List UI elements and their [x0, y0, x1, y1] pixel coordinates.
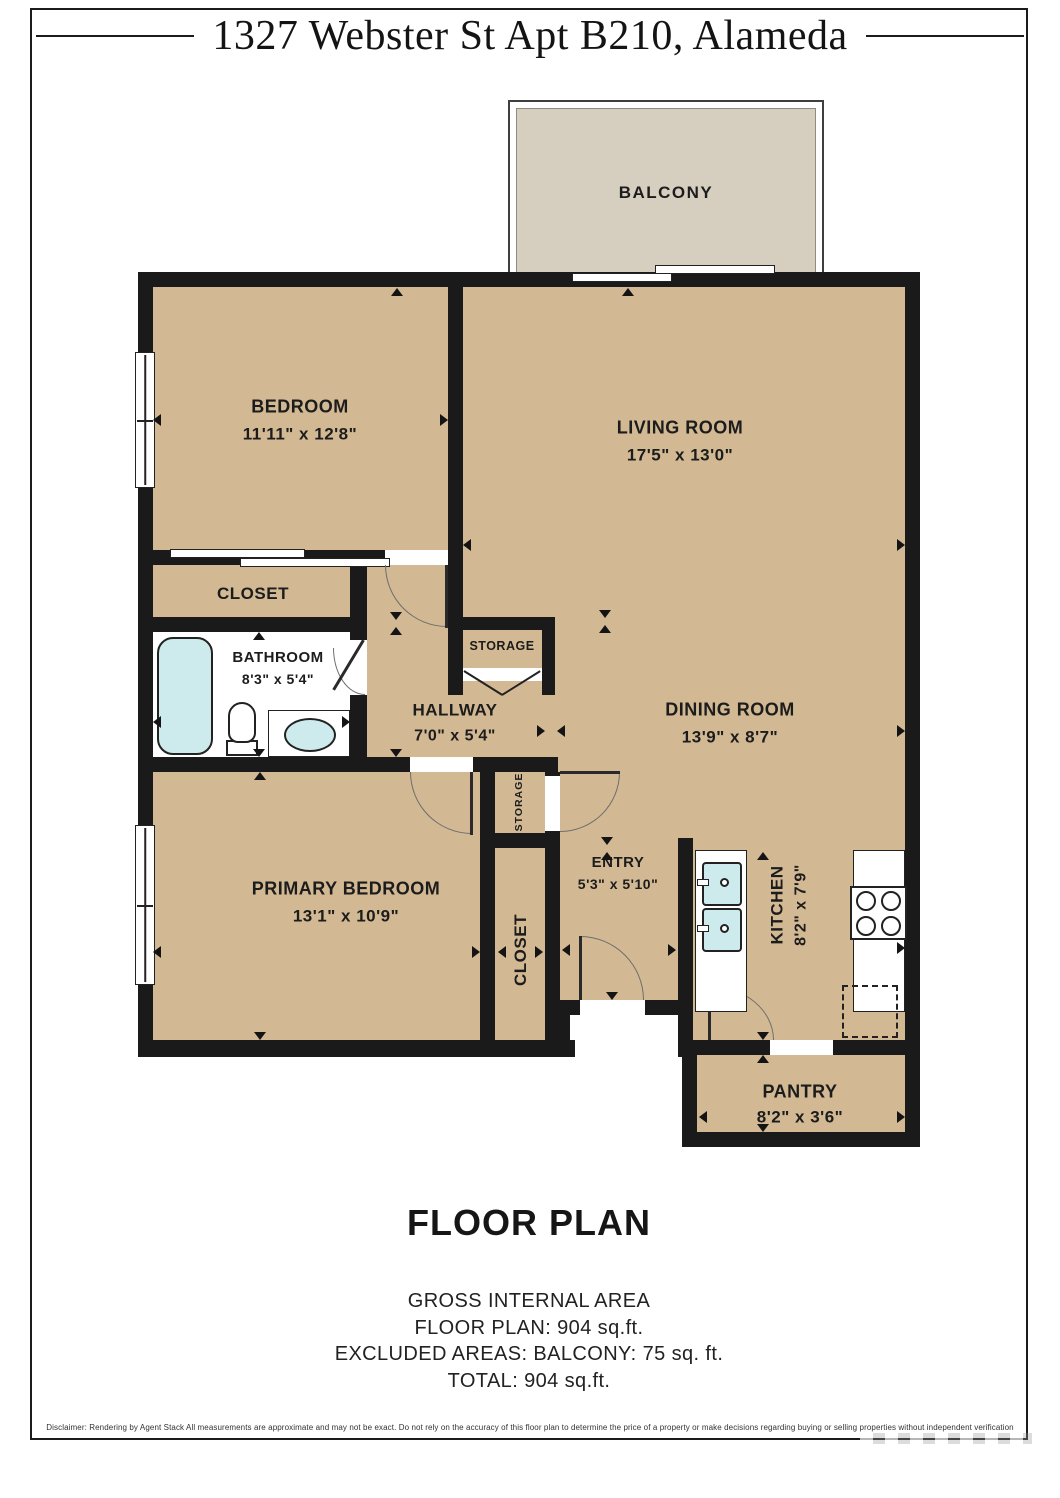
door-opening	[770, 1040, 833, 1055]
dimension-arrow	[897, 539, 905, 551]
dimension-arrow	[557, 725, 565, 737]
door-opening	[410, 757, 473, 772]
front-door-opening	[580, 1000, 645, 1015]
watermark-smudge	[860, 1433, 1032, 1444]
window-divider	[137, 905, 153, 907]
wall	[138, 617, 367, 632]
entry-door-leaf	[579, 936, 582, 1000]
primary-bedroom-window	[135, 825, 155, 985]
primary-closet-label: CLOSET	[511, 914, 531, 986]
bedroom-door-leaf	[445, 565, 448, 628]
bedroom-label: BEDROOM 11'11" x 12'8"	[243, 396, 357, 443]
bedroom-window	[135, 352, 155, 488]
dimension-arrow	[601, 852, 613, 860]
balcony-sliding-door-panel	[572, 273, 672, 282]
sink-basin	[284, 718, 336, 752]
wall	[542, 617, 555, 695]
dimension-arrow	[342, 716, 350, 728]
dimension-arrow	[390, 627, 402, 635]
dimension-arrow	[472, 946, 480, 958]
faucet-drain	[720, 924, 729, 933]
wall	[480, 848, 495, 1040]
dimension-arrow	[668, 944, 676, 956]
dimension-arrow	[153, 946, 161, 958]
dimension-arrow	[757, 852, 769, 860]
excluded-areas-line: EXCLUDED AREAS: BALCONY: 75 sq. ft.	[335, 1341, 724, 1368]
dimension-arrow	[253, 749, 265, 757]
entry-label: ENTRY 5'3" x 5'10"	[578, 854, 658, 892]
title-rule-right	[866, 35, 1024, 37]
dimension-arrow	[440, 414, 448, 426]
door-opening	[385, 550, 448, 565]
dimension-arrow	[757, 1055, 769, 1063]
total-area-line: TOTAL: 904 sq.ft.	[335, 1368, 724, 1395]
faucet-handle	[697, 879, 709, 886]
pantry-label: PANTRY 8'2" x 3'6"	[757, 1081, 843, 1126]
dimension-arrow	[897, 725, 905, 737]
storage-label: STORAGE	[513, 773, 525, 832]
closet-sliding-door-panel	[170, 549, 305, 558]
faucet-handle	[697, 925, 709, 932]
dimension-arrow	[535, 946, 543, 958]
dimension-arrow	[537, 725, 545, 737]
dimension-arrow	[699, 1111, 707, 1123]
wall	[480, 833, 560, 848]
dimension-arrow	[390, 749, 402, 757]
primary-bedroom-label: PRIMARY BEDROOM 13'1" x 10'9"	[252, 878, 441, 925]
window-divider	[137, 420, 153, 422]
dimension-arrow	[622, 288, 634, 296]
dimension-arrow	[599, 625, 611, 633]
dimension-arrow	[153, 716, 161, 728]
primary-bedroom-door-leaf	[470, 772, 473, 835]
living-room-label: LIVING ROOM 17'5" x 13'0"	[617, 417, 744, 464]
dimension-arrow	[390, 612, 402, 620]
dimension-arrow	[463, 539, 471, 551]
dimension-arrow	[897, 942, 905, 954]
storage-door-leaf	[560, 771, 620, 774]
floor-plan-heading: FLOOR PLAN	[407, 1202, 651, 1244]
stove-burner	[881, 891, 901, 911]
wall	[138, 1040, 575, 1057]
header: 1327 Webster St Apt B210, Alameda	[36, 12, 1024, 60]
wall	[448, 287, 463, 695]
dimension-arrow	[897, 1111, 905, 1123]
balcony-sliding-door-panel	[655, 265, 775, 274]
dimension-arrow	[254, 772, 266, 780]
wall	[448, 617, 555, 630]
dimension-arrow	[153, 414, 161, 426]
balcony-label: BALCONY	[619, 183, 714, 203]
dimension-arrow	[757, 1032, 769, 1040]
bathroom-label: BATHROOM 8'3" x 5'4"	[232, 649, 323, 687]
title-rule-left	[36, 35, 194, 37]
dimension-arrow	[757, 1124, 769, 1132]
refrigerator-space	[842, 985, 898, 1038]
stove-burner	[856, 891, 876, 911]
storage-label: STORAGE	[469, 639, 534, 653]
floor-plan-area-line: FLOOR PLAN: 904 sq.ft.	[335, 1315, 724, 1342]
area-summary: GROSS INTERNAL AREA FLOOR PLAN: 904 sq.f…	[335, 1288, 724, 1394]
exterior-notch	[570, 1015, 682, 1057]
gross-internal-area-line: GROSS INTERNAL AREA	[335, 1288, 724, 1315]
wall	[547, 1000, 570, 1042]
dimension-arrow	[599, 610, 611, 618]
stove-burner	[881, 916, 901, 936]
closet-sliding-door-panel	[240, 558, 390, 567]
dining-room-label: DINING ROOM 13'9" x 8'7"	[665, 699, 795, 746]
faucet-drain	[720, 878, 729, 887]
dimension-arrow	[253, 632, 265, 640]
kitchen-label: KITCHEN 8'2" x 7'9"	[768, 864, 811, 946]
closet-label: CLOSET	[217, 584, 289, 604]
toilet-bowl	[228, 702, 256, 743]
dimension-arrow	[562, 944, 570, 956]
door-opening	[545, 776, 560, 831]
dimension-arrow	[391, 288, 403, 296]
floor-plan-page: 1327 Webster St Apt B210, Alameda BALCON…	[0, 0, 1060, 1498]
hallway-label: HALLWAY 7'0" x 5'4"	[412, 701, 497, 746]
stove-burner	[856, 916, 876, 936]
page-title: 1327 Webster St Apt B210, Alameda	[212, 12, 847, 60]
bathtub	[157, 637, 213, 755]
dimension-arrow	[498, 946, 506, 958]
wall	[678, 838, 693, 1057]
wall	[138, 757, 558, 772]
dimension-arrow	[606, 992, 618, 1000]
dimension-arrow	[601, 837, 613, 845]
dimension-arrow	[254, 1032, 266, 1040]
disclaimer-text: Disclaimer: Rendering by Agent Stack All…	[45, 1423, 1015, 1432]
